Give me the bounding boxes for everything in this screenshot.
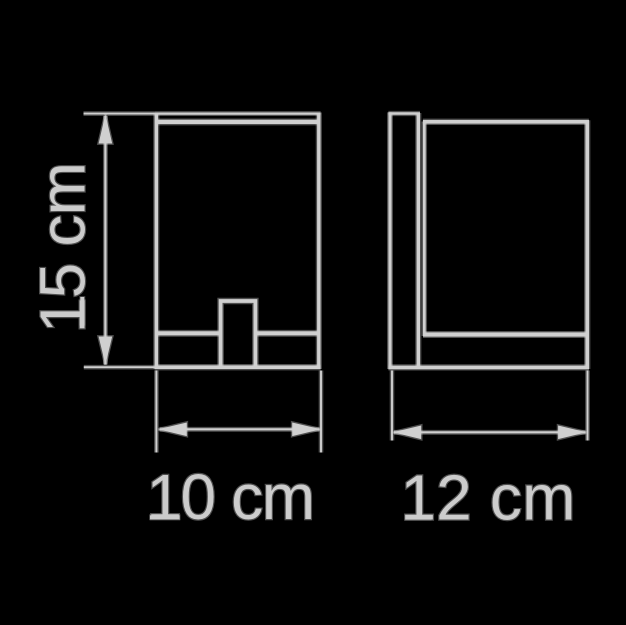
svg-text:15 cm: 15 cm	[27, 163, 99, 333]
svg-text:12 cm: 12 cm	[400, 462, 575, 534]
svg-text:10 cm: 10 cm	[146, 461, 313, 533]
